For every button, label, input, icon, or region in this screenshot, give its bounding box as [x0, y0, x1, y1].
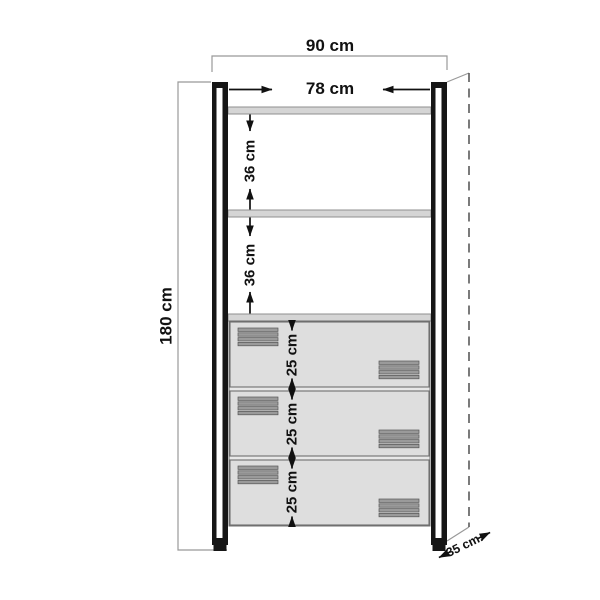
- drawer-1-height-label: 25 cm: [284, 334, 301, 377]
- left-post-foot: [214, 545, 227, 551]
- width-dimension-bracket: [212, 56, 447, 72]
- inner-width-label: 78 cm: [306, 79, 354, 98]
- upper-shelf-gap-label: 36 cm: [242, 140, 259, 183]
- furniture-dimension-diagram: 90 cm 78 cm 180 cm 36 cm 36 cm 25 cm 25 …: [0, 0, 600, 600]
- shelf-middle: [228, 210, 431, 217]
- drawer-2-height-label: 25 cm: [284, 403, 301, 446]
- depth-label: 35 cm.: [444, 530, 485, 560]
- diagram-canvas: 90 cm 78 cm 180 cm 36 cm 36 cm 25 cm 25 …: [0, 0, 600, 600]
- right-post: [431, 82, 447, 551]
- drawer-3-height-label: 25 cm: [284, 471, 301, 514]
- shelf-top: [228, 107, 431, 114]
- shelf-drawer-top: [228, 314, 431, 321]
- depth-top-edge-line: [447, 73, 469, 82]
- total-height-label: 180 cm: [157, 287, 176, 345]
- left-post: [212, 82, 228, 551]
- lower-shelf-gap-label: 36 cm: [242, 244, 259, 287]
- total-width-label: 90 cm: [306, 36, 354, 55]
